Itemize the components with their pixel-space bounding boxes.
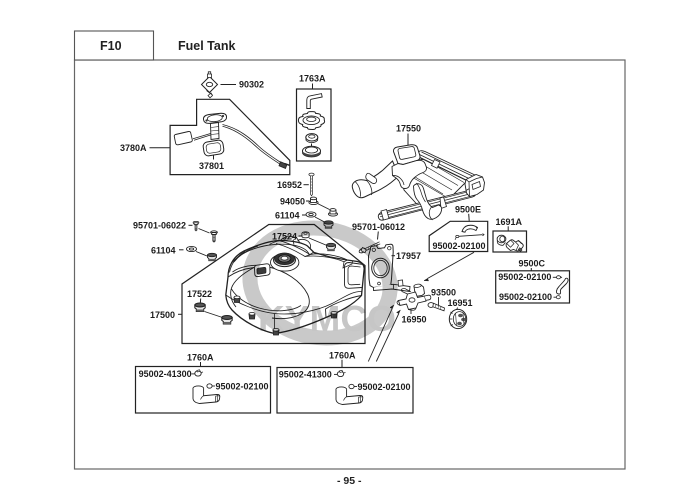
svg-text:17522: 17522 xyxy=(187,289,212,299)
svg-text:95002-02100: 95002-02100 xyxy=(358,382,411,392)
svg-text:- 95 -: - 95 - xyxy=(337,475,362,487)
svg-text:17550: 17550 xyxy=(396,124,421,134)
svg-text:KYMCO: KYMCO xyxy=(258,298,396,339)
svg-text:F10: F10 xyxy=(100,39,122,53)
svg-text:16950: 16950 xyxy=(402,315,427,325)
svg-text:Fuel Tank: Fuel Tank xyxy=(178,39,235,53)
svg-text:95002-02100: 95002-02100 xyxy=(216,381,269,391)
svg-text:9500C: 9500C xyxy=(519,259,546,269)
svg-text:90302: 90302 xyxy=(239,80,264,90)
svg-text:95002-41300: 95002-41300 xyxy=(279,370,332,380)
svg-text:16951: 16951 xyxy=(448,298,473,308)
svg-text:1760A: 1760A xyxy=(329,350,356,360)
svg-text:95701-06012: 95701-06012 xyxy=(352,222,405,232)
svg-text:9500E: 9500E xyxy=(455,205,481,215)
svg-text:37801: 37801 xyxy=(199,161,224,171)
svg-text:61104: 61104 xyxy=(275,210,300,220)
svg-text:1763A: 1763A xyxy=(299,74,326,84)
svg-text:95002-02100: 95002-02100 xyxy=(499,292,552,302)
svg-text:17500: 17500 xyxy=(150,310,175,320)
svg-text:3780A: 3780A xyxy=(120,143,147,153)
svg-text:95002-02100: 95002-02100 xyxy=(433,241,486,251)
svg-text:95002-41300: 95002-41300 xyxy=(139,369,192,379)
svg-text:95701-06022: 95701-06022 xyxy=(133,221,186,231)
svg-text:1760A: 1760A xyxy=(187,353,214,363)
svg-text:1691A: 1691A xyxy=(496,217,523,227)
svg-text:61104: 61104 xyxy=(151,245,176,255)
svg-text:17957: 17957 xyxy=(396,251,421,261)
svg-text:93500: 93500 xyxy=(431,287,456,297)
svg-text:95002-02100: 95002-02100 xyxy=(498,272,551,282)
svg-text:16952: 16952 xyxy=(277,180,302,190)
svg-text:94050: 94050 xyxy=(280,197,305,207)
